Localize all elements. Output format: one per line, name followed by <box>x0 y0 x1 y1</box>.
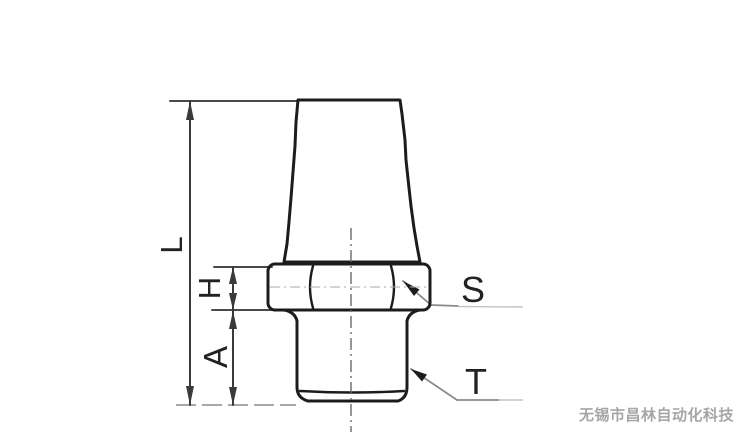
company-watermark: 无锡市昌林自动化科技 <box>578 406 735 424</box>
arrowhead-A-top <box>229 311 237 329</box>
label-A: A <box>197 346 234 368</box>
arrowhead-T <box>411 369 427 382</box>
thread-stem-body <box>284 310 420 401</box>
fitting-outline-group <box>268 100 430 401</box>
muffler-dimension-diagram: L H A S T 无锡市昌林自动化科技 <box>0 0 750 437</box>
arrowhead-H-top <box>229 267 237 284</box>
label-T: T <box>465 361 487 402</box>
label-S: S <box>461 269 485 310</box>
arrowhead-L-bottom <box>186 386 194 405</box>
arrowhead-L-top <box>186 101 194 120</box>
technical-drawing-canvas: L H A S T 无锡市昌林自动化科技 <box>0 0 750 437</box>
muffler-cone-body <box>284 100 420 262</box>
arrowhead-H-bottom <box>229 293 237 310</box>
label-L: L <box>154 236 189 253</box>
label-H: H <box>192 277 227 299</box>
thread-chamfer-line <box>300 391 404 393</box>
arrowhead-A-bottom <box>229 387 237 405</box>
